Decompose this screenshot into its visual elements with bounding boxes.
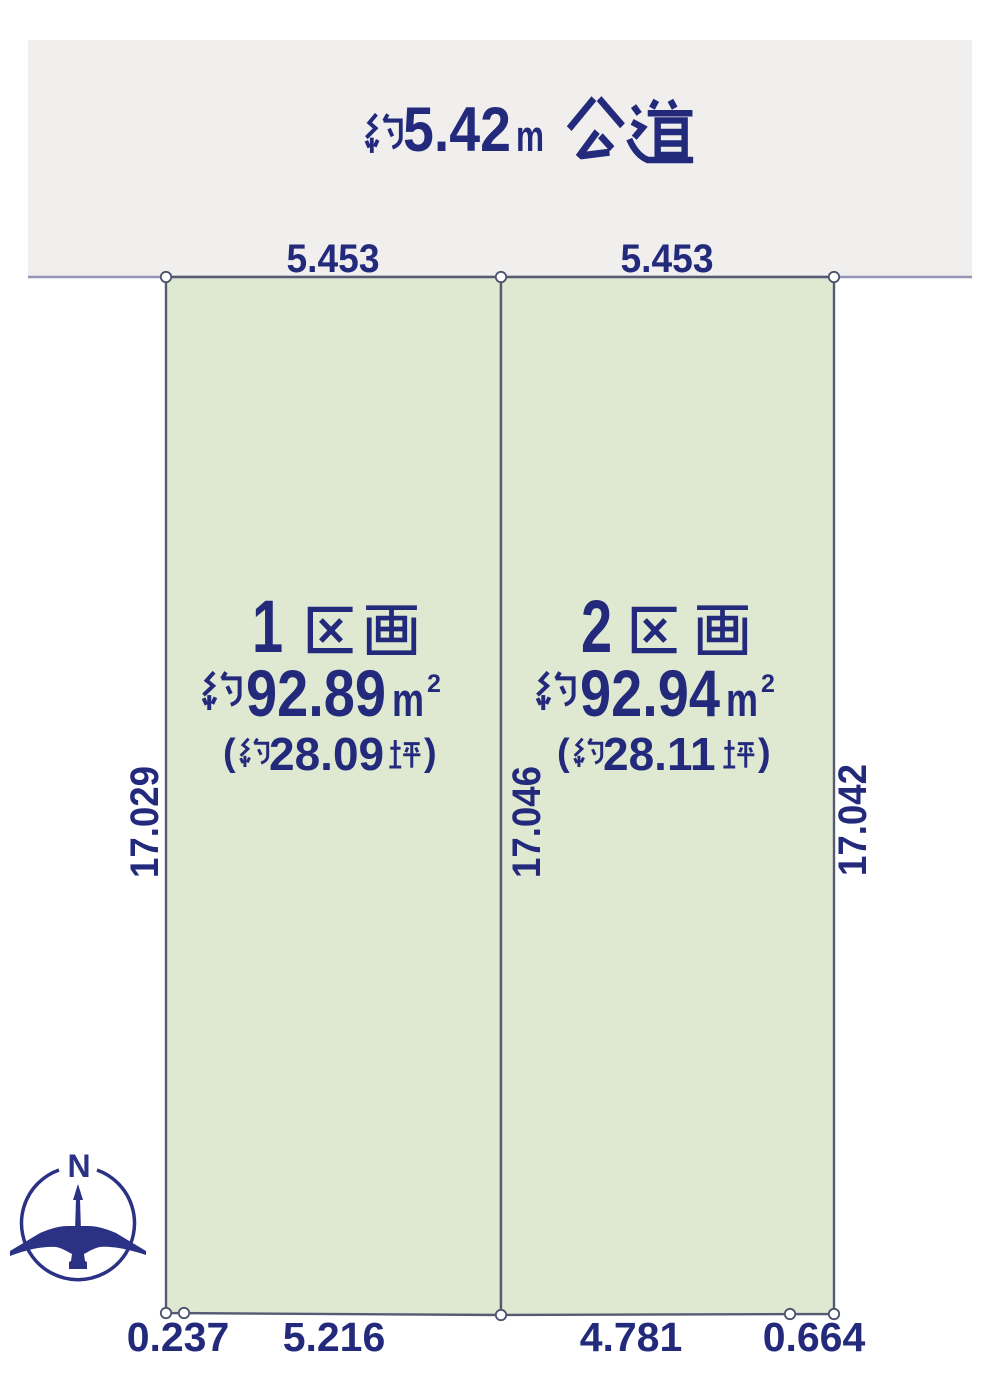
svg-text:4.781: 4.781	[580, 1314, 683, 1360]
svg-text:0.237: 0.237	[127, 1314, 230, 1360]
svg-text:m: m	[726, 673, 758, 726]
svg-text:92.94: 92.94	[580, 656, 720, 730]
svg-text:92.89: 92.89	[246, 656, 386, 730]
svg-text:(: (	[223, 732, 236, 774]
svg-text:m: m	[392, 673, 424, 726]
svg-text:): )	[758, 732, 771, 774]
svg-text:N: N	[67, 1148, 90, 1184]
svg-text:5.453: 5.453	[621, 237, 714, 281]
svg-text:m: m	[516, 112, 544, 161]
svg-text:17.042: 17.042	[831, 764, 875, 876]
svg-text:(: (	[557, 732, 570, 774]
svg-text:): )	[424, 732, 437, 774]
svg-text:5.453: 5.453	[287, 237, 380, 281]
svg-text:17.046: 17.046	[505, 766, 549, 878]
svg-text:5.216: 5.216	[283, 1314, 386, 1360]
svg-text:5.42: 5.42	[403, 95, 511, 165]
svg-text:0.664: 0.664	[763, 1314, 866, 1360]
svg-text:28.11: 28.11	[603, 728, 716, 780]
svg-text:2: 2	[761, 670, 775, 698]
svg-text:2: 2	[427, 670, 441, 698]
svg-text:17.029: 17.029	[123, 766, 167, 878]
svg-text:28.09: 28.09	[269, 728, 384, 780]
